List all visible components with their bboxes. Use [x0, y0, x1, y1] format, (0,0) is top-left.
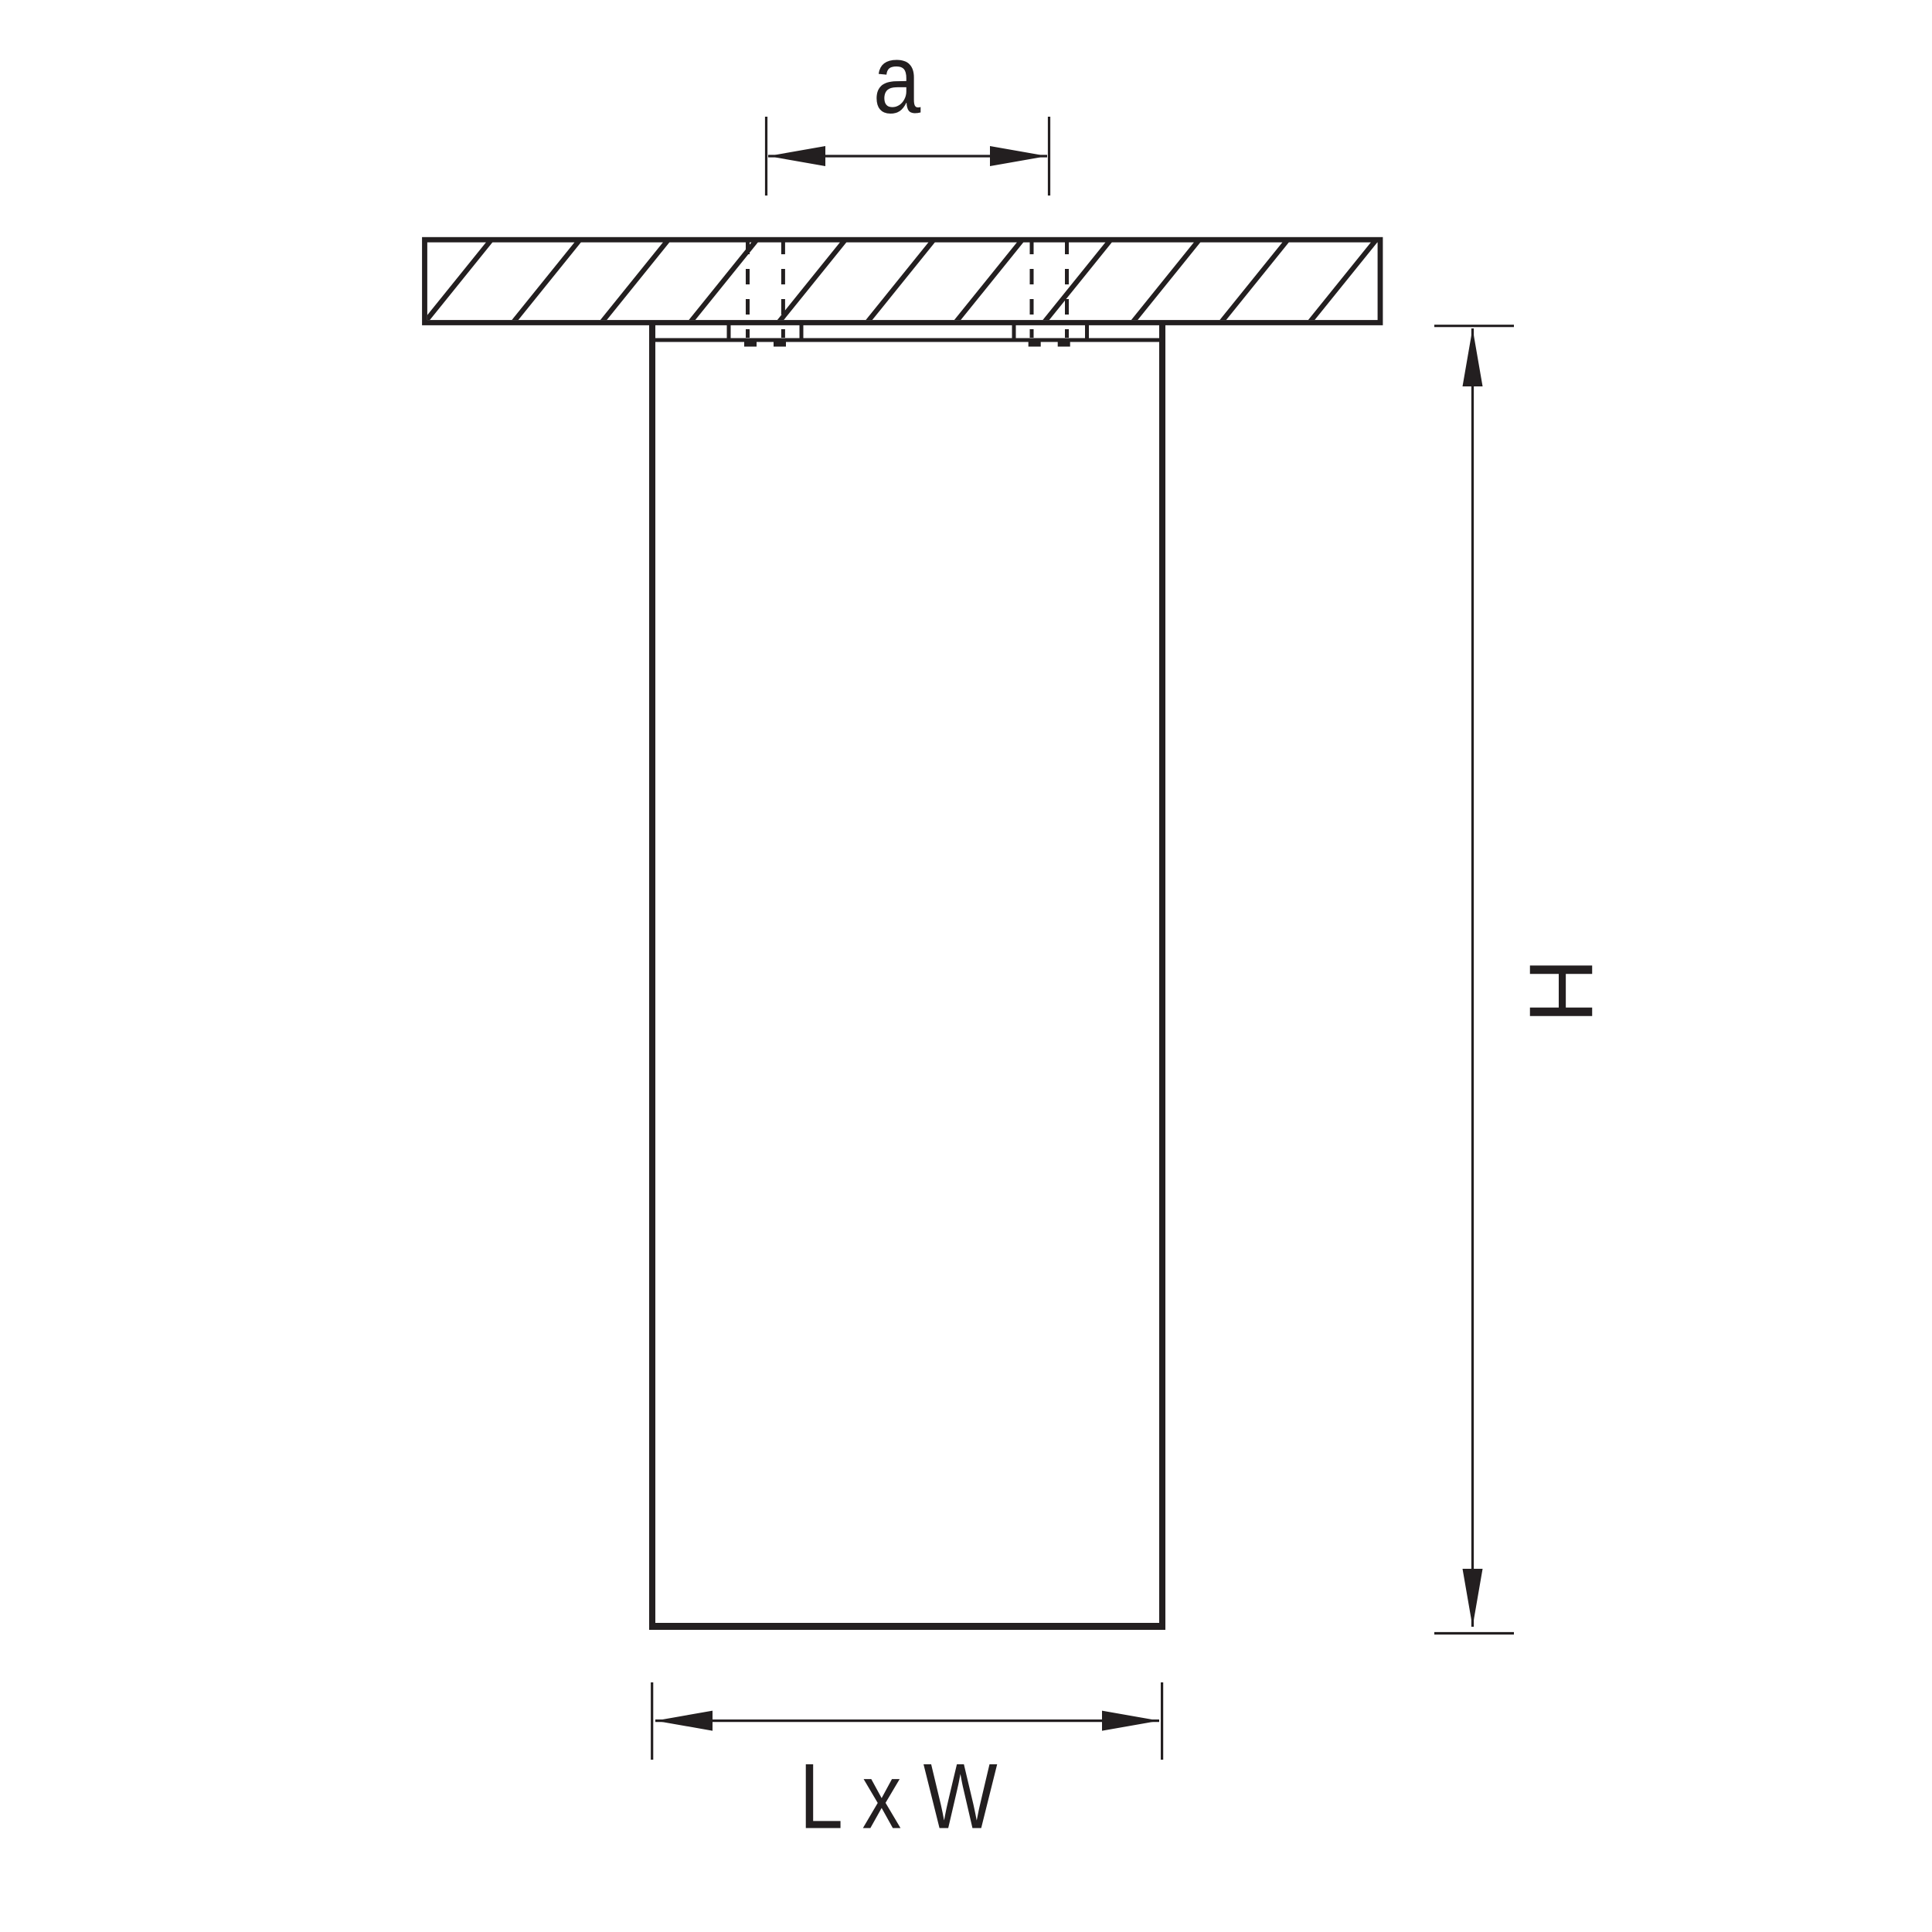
svg-text:L x W: L x W — [799, 1744, 997, 1849]
svg-text:a: a — [873, 26, 921, 134]
svg-text:H: H — [1510, 958, 1611, 1024]
